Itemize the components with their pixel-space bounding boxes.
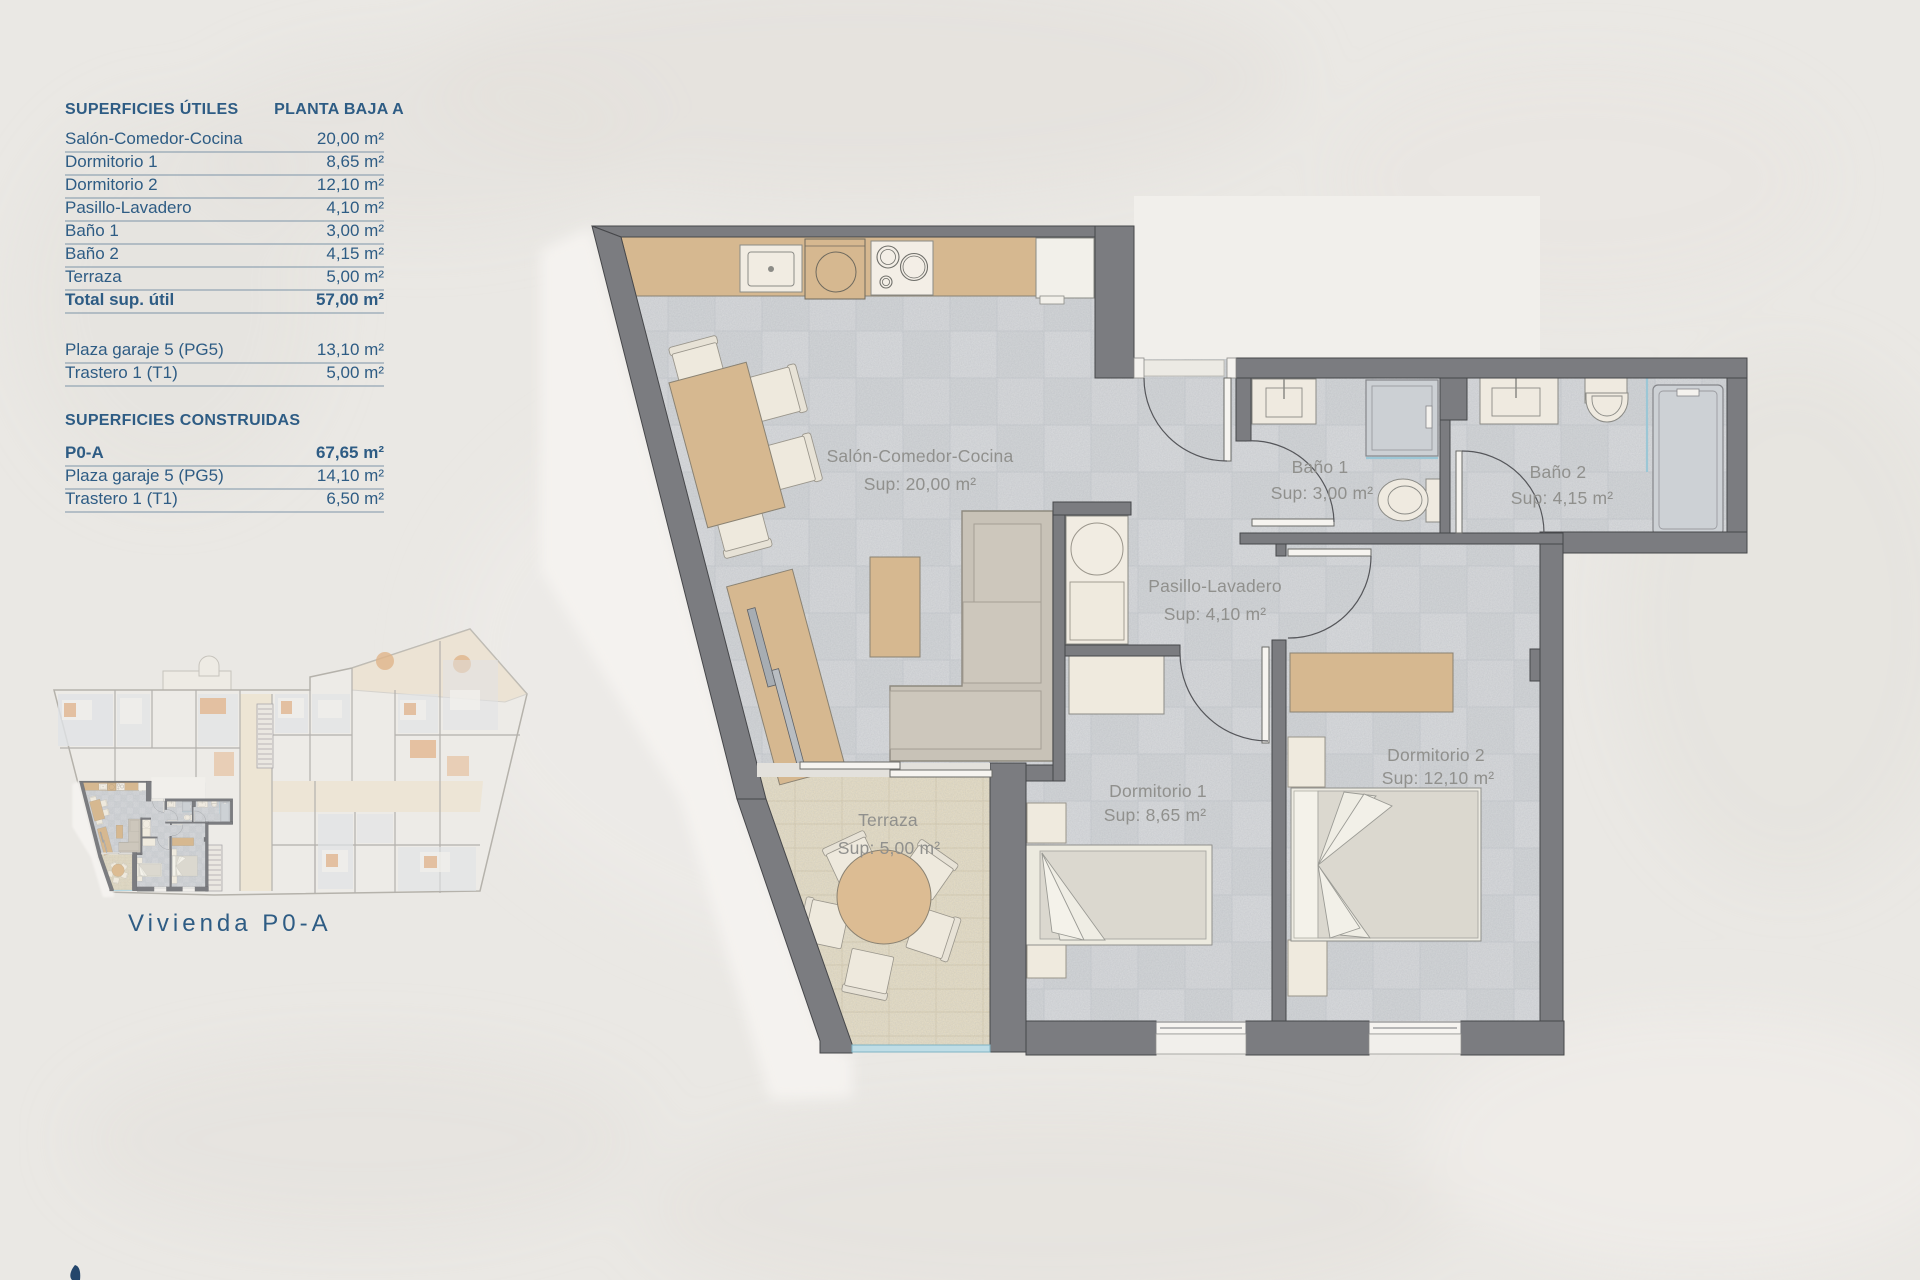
svg-text:Sup: 12,10 m²: Sup: 12,10 m² <box>1382 768 1495 788</box>
svg-text:Baño 2: Baño 2 <box>1530 462 1587 482</box>
svg-text:Baño 1: Baño 1 <box>1292 457 1349 477</box>
svg-text:Plaza garaje 5 (PG5): Plaza garaje 5 (PG5) <box>65 466 224 485</box>
svg-text:Terraza: Terraza <box>65 267 122 286</box>
svg-text:Salón-Comedor-Cocina: Salón-Comedor-Cocina <box>827 446 1014 466</box>
svg-text:57,00 m²: 57,00 m² <box>316 290 384 309</box>
svg-text:Total sup. útil: Total sup. útil <box>65 290 174 309</box>
svg-text:P0-A: P0-A <box>65 443 104 462</box>
svg-text:SUPERFICIES CONSTRUIDAS: SUPERFICIES CONSTRUIDAS <box>65 412 300 429</box>
svg-text:Dormitorio 1: Dormitorio 1 <box>65 152 158 171</box>
svg-text:Salón-Comedor-Cocina: Salón-Comedor-Cocina <box>65 129 243 148</box>
svg-text:Sup: 4,15 m²: Sup: 4,15 m² <box>1511 488 1614 508</box>
svg-text:Trastero 1 (T1): Trastero 1 (T1) <box>65 489 178 508</box>
svg-text:Plaza garaje 5 (PG5): Plaza garaje 5 (PG5) <box>65 340 224 359</box>
svg-text:Sup: 5,00 m²: Sup: 5,00 m² <box>838 838 941 858</box>
svg-text:SUPERFICIES ÚTILES: SUPERFICIES ÚTILES <box>65 99 238 118</box>
svg-text:Sup: 4,10 m²: Sup: 4,10 m² <box>1164 604 1267 624</box>
svg-text:6,50 m²: 6,50 m² <box>326 489 384 508</box>
svg-text:4,10 m²: 4,10 m² <box>326 198 384 217</box>
svg-text:5,00 m²: 5,00 m² <box>326 363 384 382</box>
svg-text:Baño 1: Baño 1 <box>65 221 119 240</box>
svg-text:Dormitorio 2: Dormitorio 2 <box>65 175 158 194</box>
svg-text:12,10 m²: 12,10 m² <box>317 175 384 194</box>
svg-text:3,00 m²: 3,00 m² <box>326 221 384 240</box>
svg-text:Dormitorio 2: Dormitorio 2 <box>1387 745 1485 765</box>
svg-text:13,10 m²: 13,10 m² <box>317 340 384 359</box>
svg-text:Pasillo-Lavadero: Pasillo-Lavadero <box>1148 576 1282 596</box>
svg-text:Terraza: Terraza <box>858 810 918 830</box>
svg-text:5,00 m²: 5,00 m² <box>326 267 384 286</box>
svg-text:Dormitorio 1: Dormitorio 1 <box>1109 781 1207 801</box>
svg-text:4,15 m²: 4,15 m² <box>326 244 384 263</box>
svg-text:20,00 m²: 20,00 m² <box>317 129 384 148</box>
svg-text:Pasillo-Lavadero: Pasillo-Lavadero <box>65 198 192 217</box>
svg-text:Sup: 3,00 m²: Sup: 3,00 m² <box>1271 483 1374 503</box>
svg-text:Trastero 1 (T1): Trastero 1 (T1) <box>65 363 178 382</box>
svg-text:Sup: 20,00 m²: Sup: 20,00 m² <box>864 474 977 494</box>
svg-text:Baño 2: Baño 2 <box>65 244 119 263</box>
svg-text:PLANTA BAJA A: PLANTA BAJA A <box>274 101 404 118</box>
svg-text:Sup: 8,65 m²: Sup: 8,65 m² <box>1104 805 1207 825</box>
svg-text:67,65 m²: 67,65 m² <box>316 443 384 462</box>
svg-text:14,10 m²: 14,10 m² <box>317 466 384 485</box>
svg-text:8,65 m²: 8,65 m² <box>326 152 384 171</box>
svg-text:Vivienda P0-A: Vivienda P0-A <box>128 910 332 937</box>
